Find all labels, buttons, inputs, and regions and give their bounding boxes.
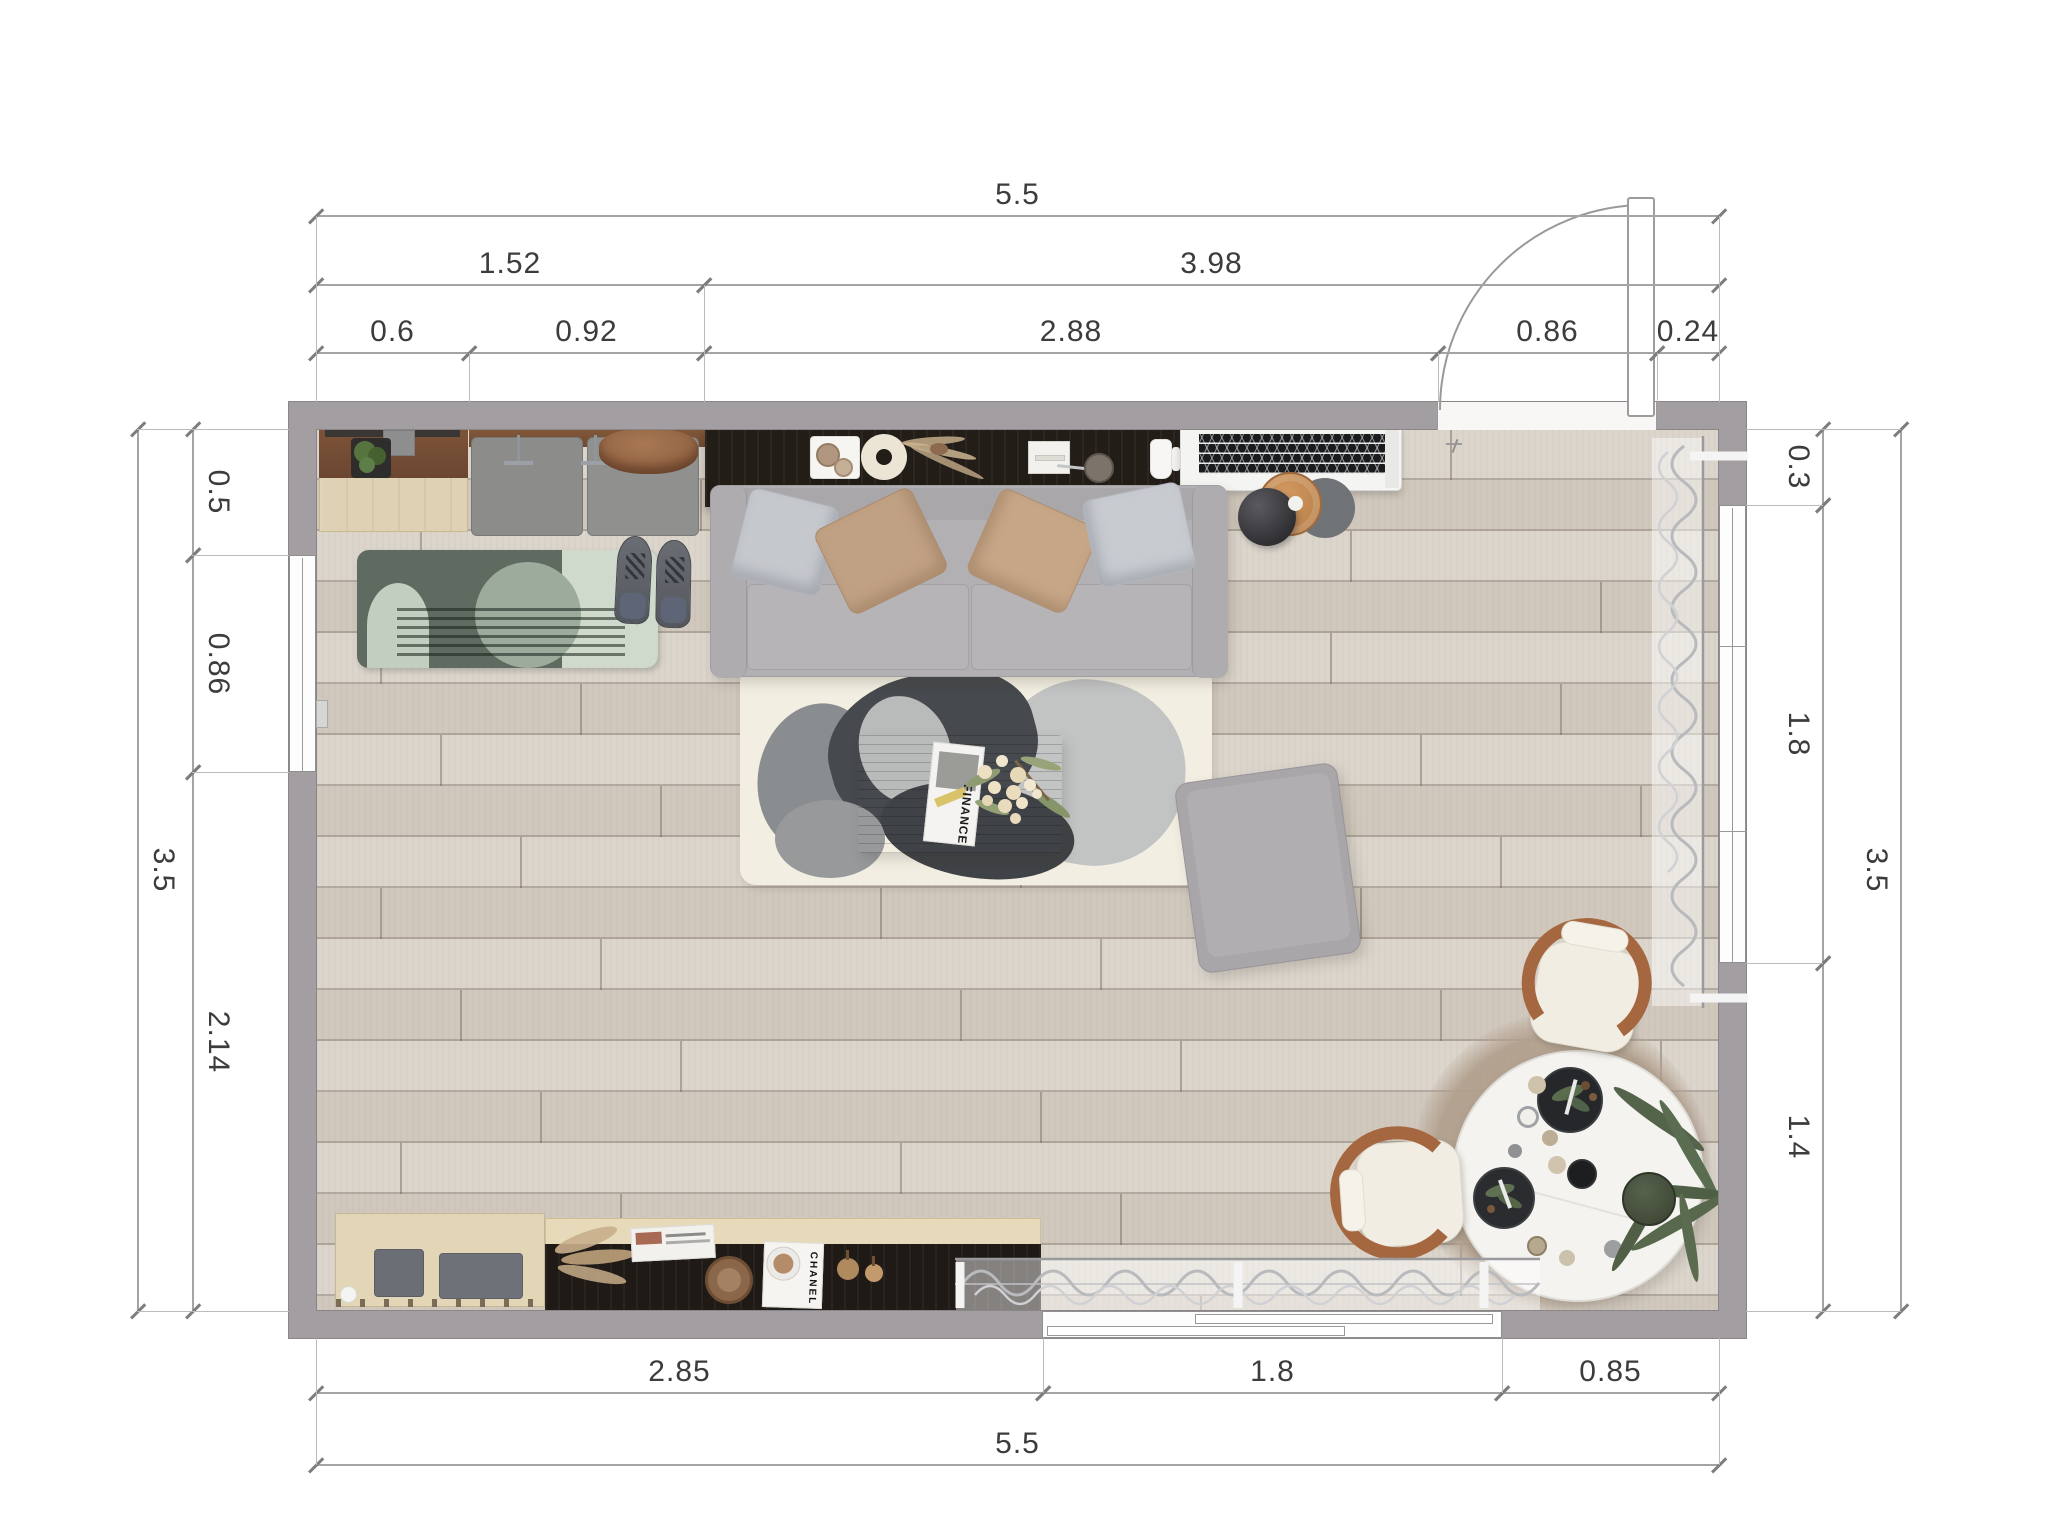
dim-left-05: 0.5	[192, 429, 194, 555]
dim-label: 1.8	[1250, 1355, 1295, 1389]
dim-left-086: 0.86	[192, 555, 194, 772]
ext-line	[469, 353, 470, 402]
dim-right-overall: 3.5	[1900, 429, 1902, 1311]
door-swing-arc	[1440, 205, 1645, 410]
ext-line	[192, 555, 289, 556]
ext-line	[1746, 505, 1823, 506]
ext-line	[1719, 1338, 1720, 1465]
dim-label: 1.8	[1781, 712, 1815, 757]
dim-top-288: 2.88	[704, 352, 1438, 354]
ext-line	[316, 1338, 317, 1465]
dim-label: 5.5	[995, 1427, 1040, 1461]
dim-top-overall: 5.5	[316, 215, 1719, 217]
dim-bottom-085: 0.85	[1502, 1392, 1719, 1394]
dim-label: 2.88	[1040, 315, 1102, 349]
dim-label: 0.5	[201, 470, 235, 515]
dim-label: 0.92	[555, 315, 617, 349]
dim-label: 0.86	[1516, 315, 1578, 349]
ext-line	[192, 772, 289, 773]
ext-line	[137, 429, 289, 430]
dim-left-overall: 3.5	[137, 429, 139, 1311]
dim-label: 1.4	[1781, 1115, 1815, 1160]
dim-right-18: 1.8	[1822, 505, 1824, 963]
door-leaf	[1628, 198, 1654, 416]
ext-line	[1438, 353, 1439, 402]
dim-label: 0.86	[201, 632, 235, 694]
dim-label: 1.52	[479, 247, 541, 281]
dim-bottom-18: 1.8	[1043, 1392, 1502, 1394]
dim-left-214: 2.14	[192, 772, 194, 1311]
dim-label: 0.6	[370, 315, 415, 349]
dim-label: 3.98	[1180, 247, 1242, 281]
overlay-lines	[0, 0, 2048, 1536]
dim-label: 2.14	[201, 1010, 235, 1072]
ext-line	[1746, 429, 1901, 430]
dim-label: 0.85	[1579, 1355, 1641, 1389]
dim-top-086: 0.86	[1438, 352, 1657, 354]
ext-line	[1746, 1311, 1901, 1312]
ext-line	[1746, 963, 1823, 964]
ext-line	[704, 285, 705, 402]
floor-plan-canvas: FINANCE	[0, 0, 2048, 1536]
ext-line	[137, 1311, 289, 1312]
ext-line	[316, 216, 317, 402]
ext-line	[1502, 1338, 1503, 1393]
dim-top-024: 0.24	[1657, 352, 1719, 354]
dim-bottom-overall: 5.5	[316, 1464, 1719, 1466]
dim-right-03: 0.3	[1822, 429, 1824, 505]
ext-line	[1657, 353, 1658, 402]
dim-label: 5.5	[995, 178, 1040, 212]
dim-label: 3.5	[146, 848, 180, 893]
dim-label: 0.24	[1657, 315, 1719, 349]
dim-label: 2.85	[648, 1355, 710, 1389]
dim-top-152: 1.52	[316, 284, 704, 286]
dim-right-14: 1.4	[1822, 963, 1824, 1311]
dim-label: 0.3	[1781, 445, 1815, 490]
dim-bottom-285: 2.85	[316, 1392, 1043, 1394]
dim-label: 3.5	[1859, 848, 1893, 893]
ext-line	[1719, 216, 1720, 402]
dim-top-06: 0.6	[316, 352, 469, 354]
dim-top-398: 3.98	[704, 284, 1719, 286]
ext-line	[1043, 1338, 1044, 1393]
dim-top-092: 0.92	[469, 352, 704, 354]
